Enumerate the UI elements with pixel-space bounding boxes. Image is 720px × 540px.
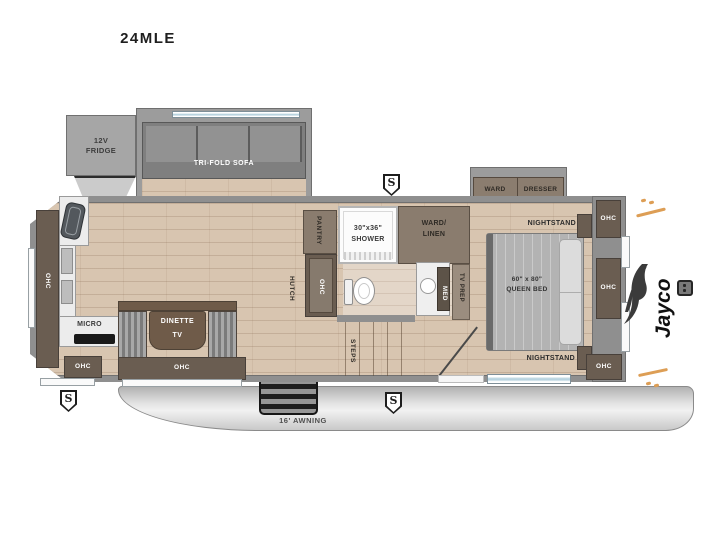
left-ohc-label: OHC [44, 273, 51, 289]
dresser-label: DRESSER [517, 186, 564, 193]
bed-size-label: 60" x 80" [486, 276, 568, 283]
dinette-label: DINETTE [149, 318, 206, 325]
fridge-label-line1: 12V [66, 136, 136, 145]
sofa-slideout-window [172, 111, 300, 118]
micro-label: MICRO [59, 321, 120, 328]
jayco-logo: Jayco [652, 278, 676, 338]
fridge-console [74, 176, 136, 197]
dinette-bench-left [118, 311, 147, 358]
speaker-badge-bottom-left: S [60, 390, 77, 412]
marker-dot [641, 198, 647, 202]
hitch-pin [683, 284, 686, 287]
kitchen-appliance-1 [61, 248, 73, 274]
ohc-rear-mid-label: OHC [596, 284, 621, 291]
awning-label: 16' AWNING [248, 416, 358, 425]
speaker-badge-awning: S [385, 392, 402, 414]
marker-swoosh [636, 207, 666, 217]
dinette-tv-label: TV [149, 332, 206, 339]
steps-label: STEPS [349, 339, 356, 363]
pantry-label: PANTRY [315, 216, 322, 245]
bottom-window-left [40, 378, 95, 386]
left-wall-ohc [36, 210, 59, 368]
dinette-bench-right [208, 311, 237, 358]
ohc-bottom-wide-label: OHC [118, 364, 246, 371]
toilet-seat [358, 283, 370, 299]
sofa-cushions [146, 126, 302, 162]
hutch-ohc-label: OHC [318, 279, 325, 295]
toilet-tank [344, 279, 353, 305]
bedroom-window [487, 374, 571, 384]
speaker-badge-top: S [383, 174, 400, 196]
ohc-bottom-left-label: OHC [64, 363, 102, 370]
fridge-label-line2: FRIDGE [66, 146, 136, 155]
toilet-bowl [353, 277, 375, 305]
tv-prep-label: TV PREP [458, 273, 464, 302]
med-label: MED [441, 286, 447, 301]
shower-door-track [344, 252, 392, 260]
front-window [28, 248, 35, 328]
speaker-icon: S [385, 394, 402, 407]
ohc-rear-top-label: OHC [596, 215, 621, 222]
speaker-icon: S [60, 392, 77, 405]
sofa-label: TRI-FOLD SOFA [152, 160, 296, 167]
hitch-icon [677, 280, 693, 296]
kitchen-appliance-2 [61, 280, 73, 304]
bathroom-wall [337, 315, 415, 322]
ward-label: WARD [473, 186, 517, 193]
microwave [74, 334, 115, 344]
shower-label: SHOWER [338, 236, 398, 243]
marker-swoosh [638, 368, 668, 377]
dinette-table [149, 311, 206, 350]
dinette-back-trim [118, 301, 237, 311]
ward-linen-label-line2: LINEN [398, 231, 470, 238]
ward-linen-label-line1: WARD/ [398, 220, 470, 227]
shower-size-label: 30"x36" [338, 225, 398, 232]
floorplan-title: 24MLE [106, 30, 190, 47]
sink-basin [64, 206, 82, 236]
ohc-rear-bottom-label: OHC [586, 363, 622, 370]
marker-dot [649, 200, 655, 204]
nightstand-label-top: NIGHTSTAND [498, 220, 576, 227]
shower [338, 206, 398, 264]
marker-dot [646, 381, 652, 385]
entry-door-opening [438, 375, 484, 383]
vanity-sink [420, 278, 436, 294]
nightstand-label-bottom: NIGHTSTAND [497, 355, 575, 362]
nightstand-top [577, 214, 592, 238]
awning [118, 386, 694, 431]
speaker-icon: S [383, 176, 400, 189]
hitch-pin [683, 289, 686, 292]
jayco-bird-icon [620, 262, 650, 326]
bed-label: QUEEN BED [486, 286, 568, 293]
hutch-label: HUTCH [288, 276, 295, 301]
bottom-window-mid [122, 379, 242, 387]
floorplan-canvas: 24MLE 16' AWNING 12V FRIDGE TRI-FOLD SOF… [0, 0, 720, 540]
